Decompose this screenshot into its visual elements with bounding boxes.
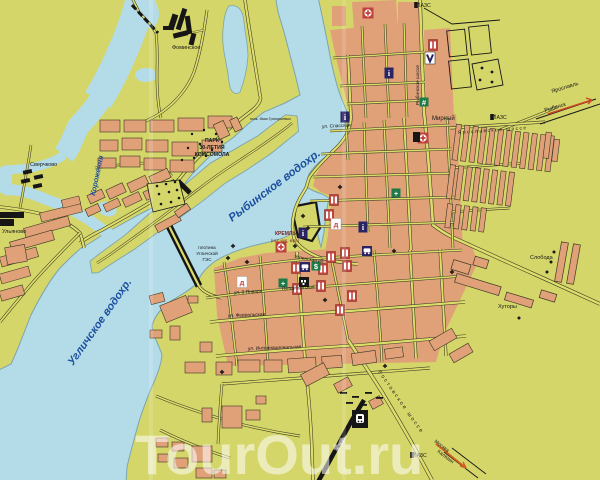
svg-text:Мирный: Мирный xyxy=(432,115,455,122)
svg-text:Ульяново: Ульяново xyxy=(2,229,26,235)
svg-text:TourOut.ru: TourOut.ru xyxy=(135,423,423,480)
svg-text:КРЕМЛЬ: КРЕМЛЬ xyxy=(275,231,296,237)
svg-text:Угличской: Угличской xyxy=(196,250,218,256)
svg-text:плотина: плотина xyxy=(198,245,216,250)
svg-text:АЗС: АЗС xyxy=(497,115,507,121)
svg-text:Сверчково: Сверчково xyxy=(30,162,57,168)
svg-text:д: д xyxy=(334,220,339,229)
svg-text:ГЭС: ГЭС xyxy=(202,257,212,262)
svg-text:АЗС: АЗС xyxy=(421,3,431,9)
svg-text:30-ЛЕТИЯ: 30-ЛЕТИЯ xyxy=(199,145,224,151)
svg-text:(ист.-худ. муз.): (ист.-худ. муз.) xyxy=(271,238,300,243)
svg-text:Слобода: Слобода xyxy=(530,255,554,261)
svg-text:д: д xyxy=(240,278,245,287)
svg-text:Фоминское: Фоминское xyxy=(172,45,200,51)
svg-text:Рыбинское шоссе: Рыбинское шоссе xyxy=(415,65,421,105)
svg-text:ПАРК: ПАРК xyxy=(205,138,220,144)
svg-text:Хуторы: Хуторы xyxy=(498,304,517,310)
svg-text:лыж. база Григорьевых: лыж. база Григорьевых xyxy=(250,117,291,121)
svg-text:КОМСОМОЛА: КОМСОМОЛА xyxy=(195,152,230,158)
svg-text:+: + xyxy=(394,189,399,198)
